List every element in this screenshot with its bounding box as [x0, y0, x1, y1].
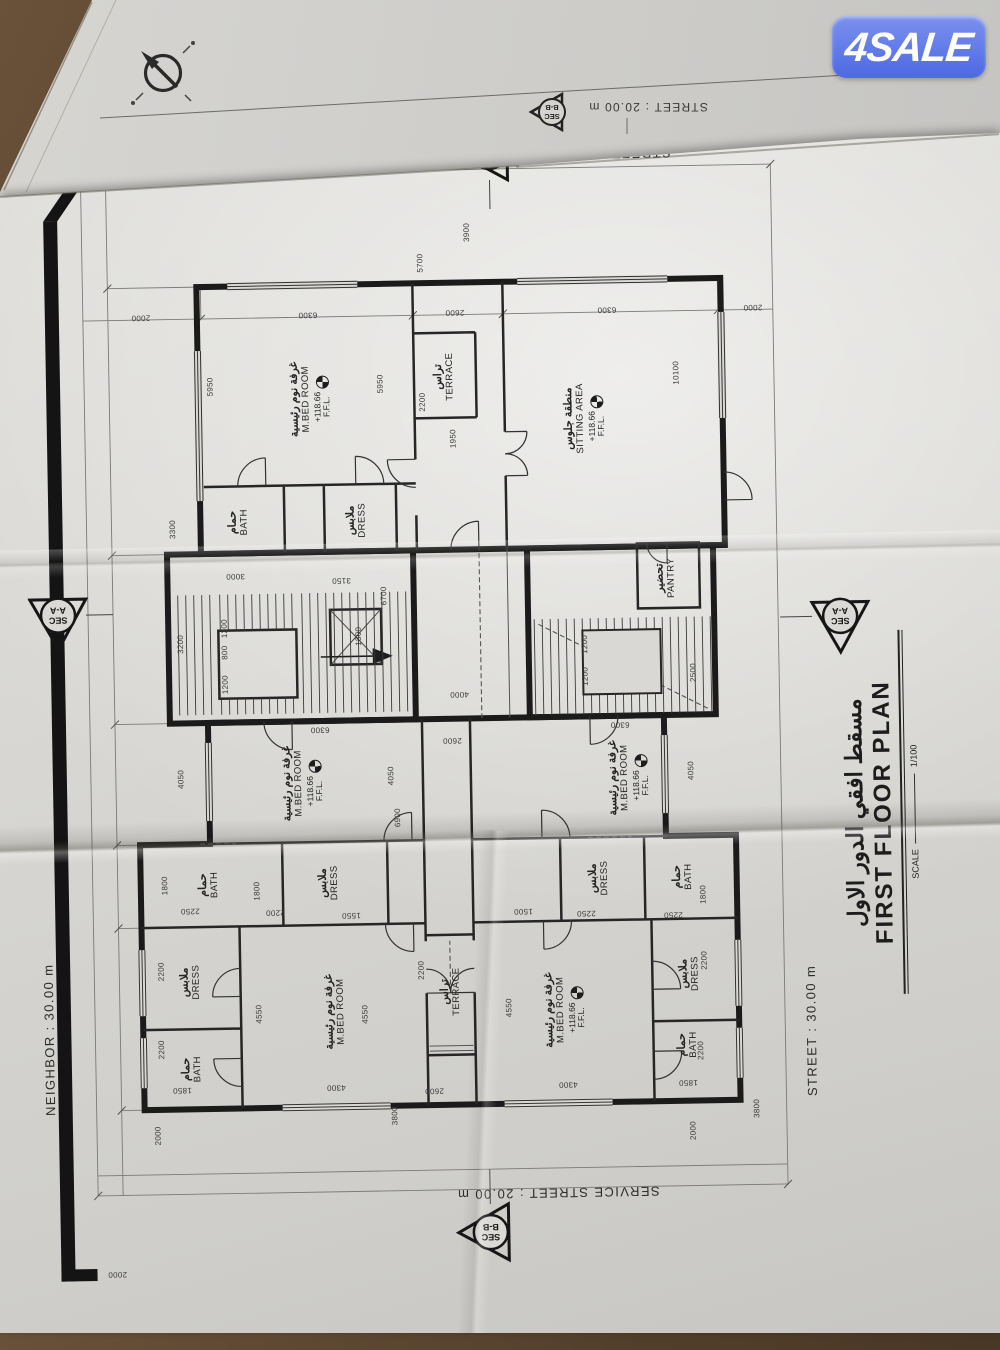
dim-label: 4050 [176, 770, 185, 789]
ffl-annotation: +118.66F.F.L. [567, 972, 588, 1048]
room-label-dress-c: ملابسDRESS [344, 503, 368, 538]
dim-label: 2600 [443, 736, 462, 745]
room-label-mbed-b: غرفة نوم رئيسيةM.BED ROOM+118.66F.F.L. [542, 972, 587, 1048]
dim-label: 1850 [173, 1086, 192, 1095]
dim-label: 4300 [327, 1083, 346, 1092]
room-label-mbed-a: غرفة نوم رئيسيةM.BED ROOM [323, 974, 348, 1050]
dim-label: 1800 [698, 885, 707, 904]
room-label-dress-a1: ملابسDRESS [178, 965, 202, 1000]
dim-label: 2000 [153, 1126, 162, 1145]
dim-label: 1200 [221, 675, 230, 694]
ffl-target-icon [570, 986, 583, 999]
dim-label: 2200 [157, 1040, 166, 1059]
ffl-target-icon [308, 760, 321, 773]
dim-label: 3800 [390, 1106, 399, 1125]
dim-label: 2500 [688, 663, 697, 682]
title-english: FIRST FLOOR PLAN [866, 622, 901, 1002]
room-label-bed2-a: غرفة نوم رئيسيةM.BED ROOM+118.66F.F.L. [280, 745, 325, 821]
main-paper-sheet: SEC A-A SEC A-A [0, 0, 1000, 1333]
room-label-bath-a1: حمامBATH [180, 1056, 204, 1083]
dim-label: 5950 [375, 374, 384, 393]
room-label-dress-b1: ملابسDRESS [677, 956, 701, 991]
dim-label: 4550 [360, 1005, 369, 1024]
dim-label: 4050 [386, 766, 395, 785]
dim-label: 2250 [577, 909, 596, 918]
dim-label: 4000 [450, 690, 469, 699]
dim-label: 2200 [157, 962, 166, 981]
dim-label: 2200 [417, 961, 426, 980]
room-label-bed2-b: غرفة نوم رئيسيةM.BED ROOM+118.66F.F.L. [606, 740, 651, 816]
dim-label: 4050 [686, 761, 695, 780]
ffl-target-icon [634, 754, 647, 767]
room-label-dress-a2: ملابسDRESS [317, 865, 341, 900]
svg-text:B-B: B-B [480, 142, 497, 152]
dim-label: 6900 [393, 808, 402, 827]
room-label-bath-b2: حمامBATH [671, 863, 695, 890]
main-sheet-wrapper: SEC A-A SEC A-A [0, 0, 1000, 1333]
dim-label: 2000 [688, 1121, 697, 1140]
dim-label: 6300 [597, 305, 616, 314]
svg-text:SEC: SEC [479, 152, 498, 162]
dim-label: 3000 [226, 572, 245, 581]
forsale-logo-text: 4SALE [843, 24, 975, 71]
dim-label: 6700 [379, 586, 388, 605]
room-label-bath-a2: حمامBATH [197, 872, 221, 899]
dim-label: 5950 [205, 377, 214, 396]
dim-label: 4550 [254, 1005, 263, 1024]
ffl-annotation: +118.66F.F.L. [312, 361, 333, 437]
dim-label: 2000 [743, 303, 762, 312]
floor-plan: SEC A-A SEC A-A [20, 126, 960, 1302]
dim-label: 2250 [181, 907, 200, 916]
dim-label: 1950 [448, 429, 457, 448]
dim-label: 3800 [752, 1099, 761, 1118]
room-label-pantry: تحضيرPANTRY [653, 558, 677, 598]
dim-label: 1800 [252, 882, 261, 901]
dim-label: 6300 [310, 725, 329, 734]
neighbor-street-label: NEIGHBOR : 30.00 m [41, 963, 59, 1116]
dim-label: 4300 [559, 1080, 578, 1089]
title-block: مسقط افقي الدور الاول FIRST FLOOR PLAN S… [838, 622, 923, 1003]
room-label-bath-b1: حمامBATH [676, 1031, 700, 1058]
room-label-terrace-c: تراسTERRACE [432, 353, 456, 402]
scale-label: SCALE [910, 849, 921, 879]
dim-label: 2000 [131, 313, 150, 322]
scale-line [913, 773, 915, 843]
dim-label: 2000 [108, 1270, 127, 1279]
room-label-terrace-m: تراسTERRACE [438, 967, 462, 1016]
dim-label: 1850 [679, 1078, 698, 1087]
dim-label: 3200 [176, 635, 185, 654]
dim-label: 2600 [445, 308, 464, 317]
dim-label: 1200 [580, 667, 589, 686]
dim-label: 800 [220, 645, 229, 659]
dim-label: 1800 [354, 627, 363, 646]
dim-label: 1200 [220, 619, 229, 638]
dim-label: 2250 [664, 910, 683, 919]
dim-label: 10100 [671, 361, 680, 385]
dim-label: 2200 [266, 908, 285, 917]
forsale-logo: 4SALE [832, 16, 986, 78]
ffl-target-icon [590, 395, 603, 408]
dim-label: 5700 [415, 254, 424, 273]
dim-label: 3300 [168, 520, 177, 539]
dim-label: 1200 [580, 635, 589, 654]
room-label-dress-b2: ملابسDRESS [587, 861, 611, 896]
dim-label: 6300 [298, 311, 317, 320]
ffl-annotation: +118.66F.F.L. [587, 383, 608, 454]
ffl-annotation: +118.66F.F.L. [631, 740, 652, 816]
dim-label: 1500 [514, 907, 533, 916]
dim-label: 4550 [504, 998, 513, 1017]
ffl-target-icon [316, 376, 329, 389]
room-label-bath-c: حمامBATH [226, 509, 250, 536]
dim-label: 3900 [462, 223, 471, 242]
front-street-label: STREET : 30.00 m [803, 965, 820, 1097]
plan-labels-layer: 2000630026006300200039005700595059502200… [20, 126, 960, 1302]
dim-label: 2600 [425, 1086, 444, 1095]
room-label-mbed-c: غرفة نوم رئيسيةM.BED ROOM+118.66F.F.L. [288, 361, 333, 437]
dim-label: 1800 [160, 876, 169, 895]
dim-label: 2200 [418, 393, 427, 412]
room-label-sitting: منطقة جلوسSITTING AREA+118.66F.F.L. [562, 383, 607, 454]
floor-plan-rotated-area: SEC A-A SEC A-A [40, 142, 960, 1302]
ffl-annotation: +118.66F.F.L. [305, 745, 326, 821]
dim-label: 3150 [332, 576, 351, 585]
dim-label: 1550 [342, 911, 361, 920]
dim-label: 6300 [610, 720, 629, 729]
scale-value: 1/100 [908, 745, 918, 768]
